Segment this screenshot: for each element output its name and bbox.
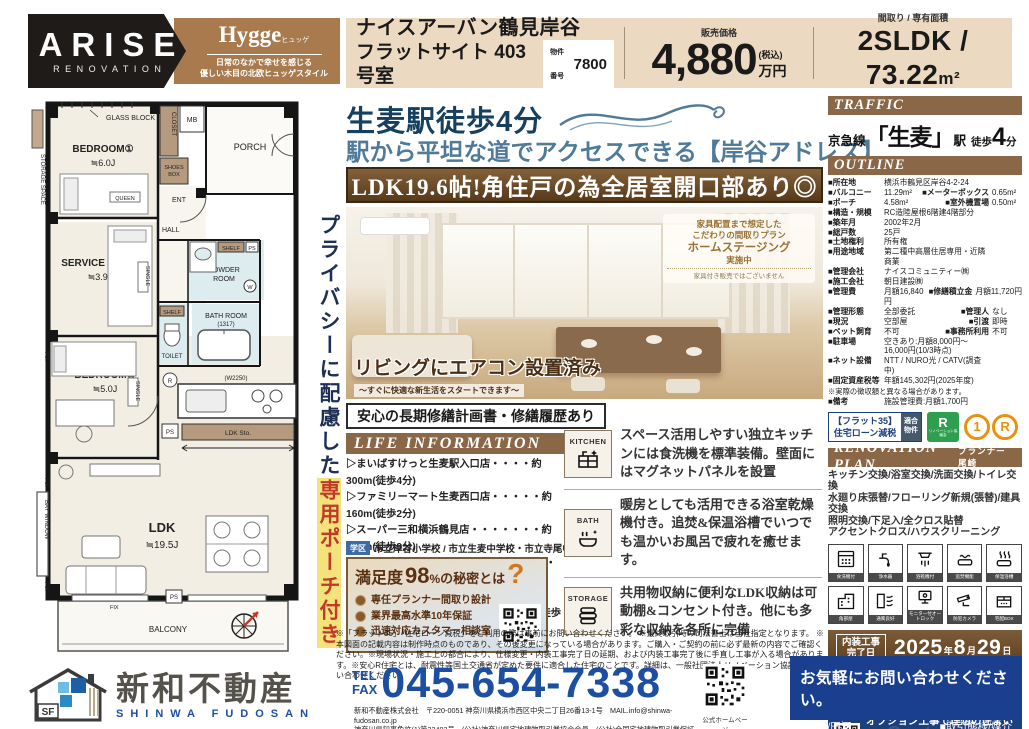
svg-text:(1317): (1317) bbox=[217, 322, 234, 328]
outline-row: ■駐車場 空きあり:月額8,000円〜16,000円(10/3時点) bbox=[828, 337, 1022, 357]
equipment-thermal-tub: 保温浴槽 bbox=[986, 544, 1022, 582]
renovation-plan-header: RENOVATION PLANプランナー 尾崎 bbox=[828, 448, 1022, 467]
outline-row: ■管理費 月額16,840円 ■修繕積立金 月額11,720円 bbox=[828, 287, 1022, 307]
brand-subname: RENOVATION bbox=[48, 64, 167, 74]
dishwasher-icon bbox=[835, 549, 857, 569]
kitchen-icon bbox=[574, 447, 602, 471]
corner-room-icon bbox=[835, 591, 857, 611]
life-item: ▷まいばすけっと生麦駅入口店・・・・約300m(徒歩4分) bbox=[346, 457, 562, 490]
school-district: 学区 市立岸谷小学校 / 市立生麦中学校・市立寺尾中学校 bbox=[346, 541, 591, 555]
divider bbox=[813, 27, 814, 79]
phone-block: TELFAX 045-654-7338 bbox=[352, 662, 661, 704]
outline-row: ■構造・規模 RC造陸屋根6階建4階部分 bbox=[828, 208, 1022, 218]
certification-badges: 【フラット35】住宅ローン減税 適合物件 R リノベーション協議会 1 R bbox=[828, 411, 1022, 443]
ventilation-icon bbox=[874, 591, 896, 611]
svg-text:≒6.0J: ≒6.0J bbox=[91, 158, 116, 168]
outline-row: ■ペット飼育 不可 ■事務所利用 不可 bbox=[828, 327, 1022, 337]
outline-row: ■ポーチ 4.58m² ■室外機置場 0.50m² bbox=[828, 198, 1022, 208]
flat35-badge: 【フラット35】住宅ローン減税 適合物件 bbox=[828, 412, 922, 442]
svg-text:STORAGE SPACE: STORAGE SPACE bbox=[39, 154, 45, 205]
svg-text:BEDROOM①: BEDROOM① bbox=[72, 144, 133, 155]
storage-towels-icon bbox=[574, 604, 602, 628]
contact-box: お気軽にお問い合わせください。 ■担当/田河 ■取引態様/媒介 bbox=[790, 656, 1022, 720]
equipment-delivery-box: 宅配BOX bbox=[986, 586, 1022, 624]
privacy-porch-note: プライバシーに配慮した専用ポーチ付き bbox=[302, 214, 344, 654]
photo-caption: リビングにエアコン設置済み 〜すぐに快適な新生活をスタートできます〜 bbox=[354, 353, 601, 398]
homepage-qr: 公式ホームページ bbox=[702, 664, 748, 729]
style-concept-box: Hyggeヒュッゲ 日常のなかで幸せを感じる優しい木目の北欧ヒュッゲスタイル bbox=[174, 18, 340, 84]
renovation-line: キッチン交換/浴室交換/洗面交換/トイレ交換 bbox=[828, 470, 1022, 493]
renovation-r-badge: R リノベーション協議会 bbox=[927, 412, 959, 442]
outline-row: ■ネット設備 NTT / NURO光 / CATV(調査中) bbox=[828, 356, 1022, 376]
layout-block: 間取り / 専有面積 2SLDK / 73.22m² bbox=[824, 11, 1002, 96]
outline-bikou-row: ■備考施設管理費:月額1,700円 bbox=[828, 397, 1022, 407]
traffic-header: TRAFFIC bbox=[828, 96, 1022, 115]
price-block: 販売価格 4,880 (税込) 万円 bbox=[635, 26, 803, 81]
style-title: Hyggeヒュッゲ bbox=[219, 23, 310, 52]
outline-row: ■総戸数 25戸 bbox=[828, 228, 1022, 238]
thermal-tub-icon bbox=[993, 549, 1015, 569]
svg-text:SINGLE: SINGLE bbox=[144, 266, 150, 287]
svg-text:BATH ROOM: BATH ROOM bbox=[205, 313, 247, 320]
renovation-line: 水廻り床張替/フローリング新規(張替)/建具交換 bbox=[828, 493, 1022, 516]
reheating-icon bbox=[954, 549, 976, 569]
equipment-bath-dryer: 浴乾機付 bbox=[907, 544, 943, 582]
floor-plan: GLASS BLOCK STORAGE SPACE BEDROOM① ≒6.0J… bbox=[10, 96, 302, 664]
security-camera-icon bbox=[954, 591, 976, 611]
feature-kitchen: KITCHEN スペース活用しやすい独立キッチンには食洗機を標準装備。壁面にはマ… bbox=[564, 420, 822, 489]
property-name: ナイスアーバン鶴見岸谷 フラットサイト 403号室 物件番号 7800 bbox=[356, 16, 614, 90]
ldk-feature-banner: LDK19.6帖!角住戸の為全居室開口部あり◎ bbox=[346, 167, 823, 203]
home-staging-badge: 家具配置まで想定した こだわりの間取りプラン ホームステージング 実施中 家具付… bbox=[663, 214, 815, 283]
svg-text:FIX: FIX bbox=[43, 582, 49, 591]
svg-text:FIX: FIX bbox=[110, 605, 119, 611]
floor-plan-drawing: GLASS BLOCK STORAGE SPACE BEDROOM① ≒6.0J… bbox=[10, 96, 302, 664]
homepage-qr-code bbox=[703, 664, 747, 708]
svg-text:PS: PS bbox=[166, 430, 174, 436]
air-conditioner bbox=[360, 217, 430, 235]
equipment-monitor-autolock: モニター付オートロック bbox=[907, 586, 943, 624]
water-purifier-icon bbox=[874, 549, 896, 569]
feature-list: KITCHEN スペース活用しやすい独立キッチンには食洗機を標準装備。壁面にはマ… bbox=[564, 420, 822, 646]
renovation-items: キッチン交換/浴室交換/洗面交換/トイレ交換水廻り床張替/フローリング新規(張替… bbox=[828, 467, 1022, 541]
svg-text:PS: PS bbox=[248, 246, 256, 252]
bath-dryer-icon bbox=[914, 549, 936, 569]
equipment-water-purifier: 浄水器 bbox=[868, 544, 904, 582]
outline-row: ■用途地域 第二種中高層住居専用・近隣商業 bbox=[828, 247, 1022, 267]
layout-value: 2SLDK / 73.22m² bbox=[824, 24, 1002, 96]
svg-text:PORCH: PORCH bbox=[234, 142, 267, 152]
outline-row: ■バルコニー 11.29m² ■メーターボックス 0.65m² bbox=[828, 188, 1022, 198]
svg-text:SHOES: SHOES bbox=[164, 165, 184, 171]
company-address: 新和不動産株式会社 〒220-0051 神奈川県横浜市西区中央二丁目26番13-… bbox=[354, 706, 700, 729]
svg-text:≒5.0J: ≒5.0J bbox=[93, 384, 118, 394]
svg-text:BAY WINDOW: BAY WINDOW bbox=[43, 500, 49, 540]
svg-text:FIX: FIX bbox=[43, 352, 49, 361]
outline-note: ※実際の徴収額と異なる場合があります。 bbox=[828, 387, 1022, 397]
price-value: 4,880 bbox=[651, 39, 756, 81]
outline-row: ■施工会社 朝日建設㈱ bbox=[828, 277, 1022, 287]
contact-staff: ■担当/田河 bbox=[800, 719, 851, 729]
svg-text:PS: PS bbox=[170, 595, 178, 601]
outline-row: ■管理会社 ナイスコミュニティー㈱ bbox=[828, 267, 1022, 277]
svg-text:GLASS BLOCK: GLASS BLOCK bbox=[106, 115, 155, 122]
bath-icon bbox=[574, 526, 602, 550]
svg-text:SINGLE: SINGLE bbox=[134, 381, 140, 402]
svg-text:≒19.5J: ≒19.5J bbox=[146, 540, 179, 551]
equipment-corner-room: 角部屋 bbox=[828, 586, 864, 624]
outline-header: OUTLINE bbox=[828, 156, 1022, 175]
svg-text:BOX: BOX bbox=[168, 172, 180, 178]
svg-text:W: W bbox=[247, 285, 253, 291]
renovation-line: 照明交換/下足入/全クロス貼替 bbox=[828, 516, 1022, 528]
svg-text:(W2250): (W2250) bbox=[224, 376, 247, 382]
delivery-box-icon bbox=[993, 591, 1015, 611]
satisfaction-title: 満足度98%の秘密とは? bbox=[355, 563, 539, 589]
equipment-dishwasher: 食洗機付 bbox=[828, 544, 864, 582]
svg-text:SHELF: SHELF bbox=[163, 310, 181, 316]
style-tagline: 日常のなかで幸せを感じる優しい木目の北欧ヒュッゲスタイル bbox=[200, 58, 328, 79]
contact-type: ■取引態様/媒介 bbox=[940, 719, 1012, 729]
outline-row: ■固定資産税等 年額145,302円(2025年度) bbox=[828, 376, 1022, 386]
svg-text:BALCONY: BALCONY bbox=[149, 625, 188, 634]
anshin-r-mark: 1 R bbox=[964, 414, 1018, 440]
equipment-security-camera: 防犯カメラ bbox=[947, 586, 983, 624]
feature-bath: BATH 暖房としても活用できる浴室乾燥機付き。追焚&保温浴槽でいつでも温かいお… bbox=[564, 489, 822, 577]
company-name: 新和不動産 SHINWA FUDOSAN bbox=[116, 672, 315, 720]
outline-row: ■築年月 2002年2月 bbox=[828, 218, 1022, 228]
outline-row: ■管理形態 全部委託 ■管理人 なし bbox=[828, 307, 1022, 317]
svg-text:R: R bbox=[168, 379, 173, 385]
svg-text:ENT: ENT bbox=[172, 197, 187, 204]
outline-row: ■土地権利 所有権 bbox=[828, 237, 1022, 247]
divider bbox=[207, 54, 322, 55]
swirl-decoration-icon bbox=[556, 97, 726, 137]
traffic-line: 京急線 「生麦」 駅 徒歩 4 分 bbox=[828, 115, 1022, 156]
svg-text:SHELF: SHELF bbox=[222, 246, 240, 252]
brand-logo: ARISE RENOVATION bbox=[28, 14, 186, 88]
svg-text:LDK Sto.: LDK Sto. bbox=[225, 430, 251, 437]
brand-name: ARISE bbox=[30, 28, 185, 62]
svg-text:CLOSET: CLOSET bbox=[170, 112, 176, 136]
divider bbox=[624, 27, 625, 79]
svg-text:TOILET: TOILET bbox=[162, 354, 183, 360]
school-badge: 学区 bbox=[346, 541, 370, 555]
svg-text:MB: MB bbox=[187, 117, 198, 124]
svg-text:HALL: HALL bbox=[162, 227, 180, 234]
svg-text:SF: SF bbox=[42, 707, 55, 718]
equipment-grid: 食洗機付 浄水器 浴乾機付 追焚機能 保温浴槽 角部屋 bbox=[828, 544, 1022, 624]
equipment-ventilation: 通風良好 bbox=[868, 586, 904, 624]
flyer-page: ARISE RENOVATION Hyggeヒュッゲ 日常のなかで幸せを感じる優… bbox=[0, 0, 1029, 729]
monitor-autolock-icon bbox=[914, 588, 936, 608]
svg-text:ROOM: ROOM bbox=[213, 276, 235, 283]
svg-text:FIX: FIX bbox=[43, 478, 49, 487]
outline-row: ■現況 空部屋 ■引渡 即時 bbox=[828, 317, 1022, 327]
catch-copy-access: 駅から平坦な道でアクセスできる【岸谷アドレス】 bbox=[346, 133, 885, 167]
equipment-reheating: 追焚機能 bbox=[947, 544, 983, 582]
right-column: TRAFFIC 京急線 「生麦」 駅 徒歩 4 分 OUTLINE ■所在地 横… bbox=[828, 96, 1022, 729]
property-number-badge: 物件番号 7800 bbox=[543, 40, 614, 90]
phone-number: 045-654-7338 bbox=[381, 662, 661, 704]
svg-text:QUEEN: QUEEN bbox=[115, 196, 135, 202]
svg-text:LDK: LDK bbox=[149, 520, 176, 535]
outline-table: ■所在地 横浜市鶴見区岸谷4-2-24 ■バルコニー 11.29m² ■メーター… bbox=[828, 175, 1022, 387]
life-item: ▷ファミリーマート生麦西口店・・・・・約160m(徒歩2分) bbox=[346, 490, 562, 523]
outline-row: ■所在地 横浜市鶴見区岸谷4-2-24 bbox=[828, 178, 1022, 188]
property-header-bar: ナイスアーバン鶴見岸谷 フラットサイト 403号室 物件番号 7800 販売価格… bbox=[346, 18, 1012, 88]
renovation-line: アクセントクロス/ハウスクリーニング bbox=[828, 527, 1022, 539]
living-room-photo: 家具配置まで想定した こだわりの間取りプラン ホームステージング 実施中 家具付… bbox=[346, 207, 823, 399]
company-logo: SF bbox=[26, 664, 110, 724]
